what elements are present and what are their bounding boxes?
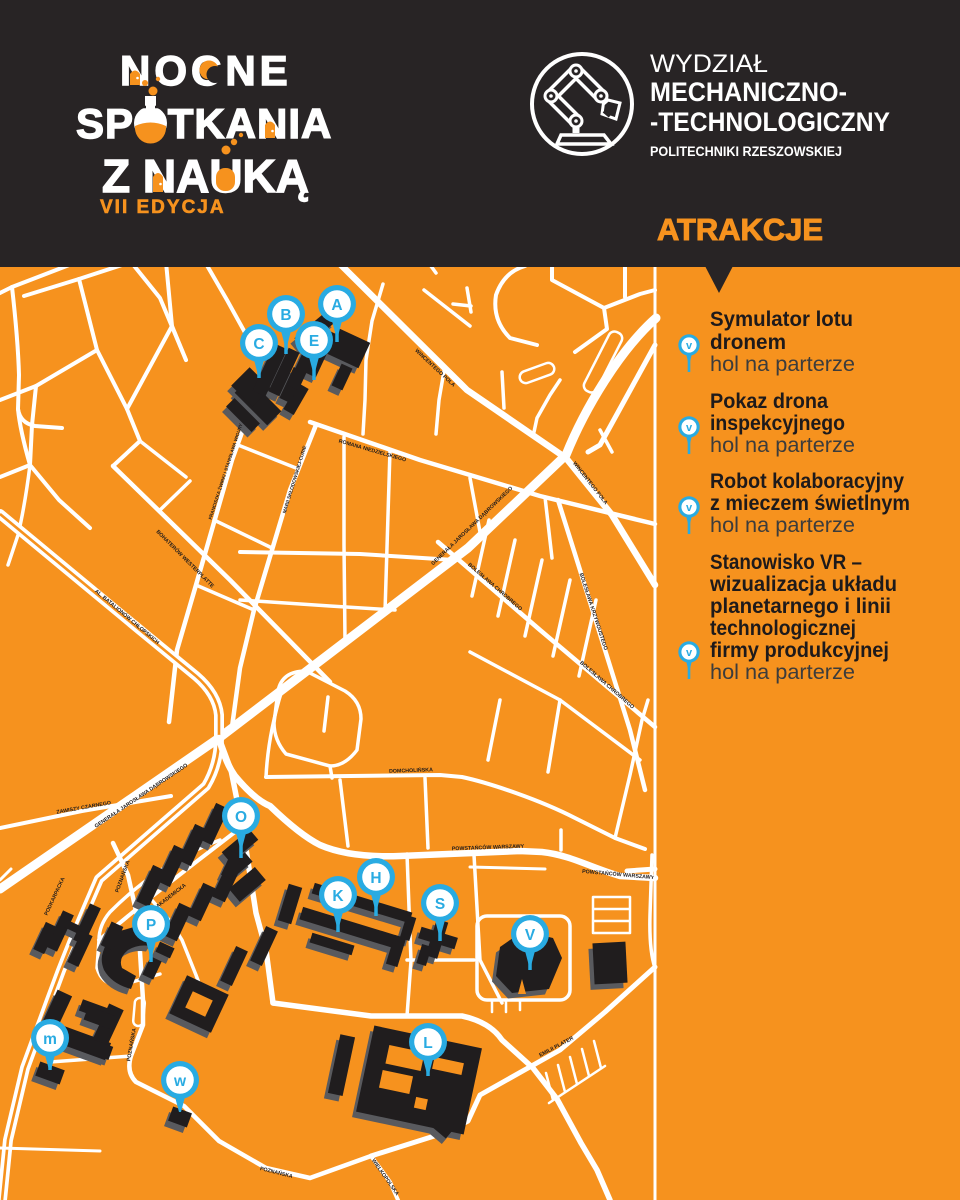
- svg-text:w: w: [173, 1073, 187, 1090]
- svg-text:z mieczem świetlnym: z mieczem świetlnym: [710, 492, 910, 515]
- svg-text:inspekcyjnego: inspekcyjnego: [710, 412, 845, 435]
- svg-text:S: S: [435, 896, 445, 913]
- svg-text:MECHANICZNO-: MECHANICZNO-: [650, 77, 847, 107]
- svg-text:hol na parterze: hol na parterze: [710, 353, 855, 376]
- svg-text:O: O: [235, 809, 247, 826]
- svg-text:C: C: [253, 336, 264, 353]
- svg-text:P: P: [146, 917, 156, 934]
- svg-text:VII EDYCJA: VII EDYCJA: [100, 197, 226, 218]
- svg-text:-TECHNOLOGICZNY: -TECHNOLOGICZNY: [650, 107, 890, 137]
- svg-text:firmy produkcyjnej: firmy produkcyjnej: [710, 639, 889, 662]
- svg-text:v: v: [686, 340, 693, 352]
- svg-text:WYDZIAŁ: WYDZIAŁ: [650, 50, 768, 78]
- svg-text:Symulator lotu: Symulator lotu: [710, 308, 853, 331]
- svg-text:Stanowisko VR –: Stanowisko VR –: [710, 551, 862, 574]
- svg-text:Pokaz drona: Pokaz drona: [710, 390, 828, 413]
- svg-text:m: m: [43, 1031, 57, 1048]
- svg-text:planetarnego i linii: planetarnego i linii: [710, 595, 891, 618]
- svg-text:dronem: dronem: [710, 331, 786, 354]
- svg-text:wizualizacja układu: wizualizacja układu: [709, 573, 897, 596]
- svg-text:V: V: [525, 927, 536, 944]
- svg-text:v: v: [686, 422, 693, 434]
- svg-text:SPOTKANIA: SPOTKANIA: [76, 100, 332, 147]
- svg-text:v: v: [686, 647, 693, 659]
- svg-text:E: E: [309, 333, 319, 350]
- svg-text:hol na parterze: hol na parterze: [710, 514, 855, 537]
- svg-text:hol na parterze: hol na parterze: [710, 661, 855, 684]
- svg-text:K: K: [332, 888, 344, 905]
- svg-text:POLITECHNIKI RZESZOWSKIEJ: POLITECHNIKI RZESZOWSKIEJ: [650, 144, 842, 159]
- svg-text:hol na parterze: hol na parterze: [710, 434, 855, 457]
- svg-text:A: A: [331, 297, 342, 314]
- svg-text:Z NAUKĄ: Z NAUKĄ: [102, 150, 309, 202]
- svg-text:L: L: [423, 1035, 432, 1052]
- svg-text:v: v: [686, 502, 693, 514]
- svg-text:B: B: [280, 307, 291, 324]
- svg-text:Robot kolaboracyjny: Robot kolaboracyjny: [710, 470, 904, 493]
- svg-text:ATRAKCJE: ATRAKCJE: [657, 212, 823, 247]
- svg-text:technologicznej: technologicznej: [710, 617, 856, 640]
- svg-text:H: H: [370, 870, 381, 887]
